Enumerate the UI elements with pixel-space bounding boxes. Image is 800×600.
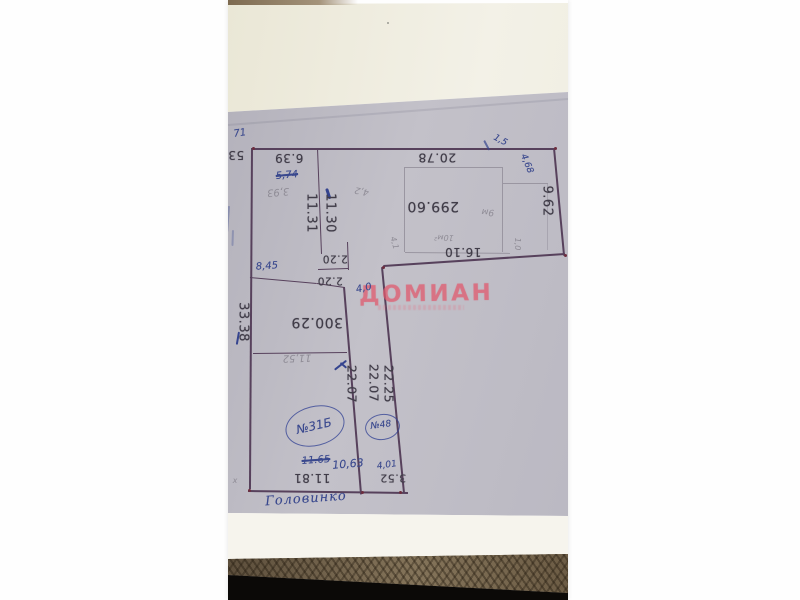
dimension-label: 2.20 <box>322 253 347 264</box>
handwritten-note: 5,74 <box>275 170 298 182</box>
dimension-label: 6.39 <box>275 152 304 164</box>
paper-speck <box>387 22 389 24</box>
watermark: ДОМИАН <box>359 280 494 308</box>
corner-dot <box>248 489 251 492</box>
pencil-building-right <box>502 167 503 252</box>
dimension-label: 11.31 <box>305 193 318 233</box>
pencil-building-left <box>404 167 405 252</box>
pencil-annex-line <box>503 183 548 184</box>
corner-dot <box>252 147 255 150</box>
watermark-text: ДОМИАН <box>359 280 494 308</box>
handwritten-note: 10,63 <box>332 457 364 471</box>
dimension-label: 16.10 <box>445 246 482 258</box>
handwritten-note: 8,45 <box>256 261 279 273</box>
dimension-label: 33.38 <box>237 302 250 342</box>
handwritten-note: х <box>233 477 238 485</box>
corner-dot <box>382 266 385 269</box>
corner-dot <box>361 491 364 494</box>
corner-dot <box>399 491 402 494</box>
handwritten-note: 11,52 <box>283 352 312 363</box>
plan-photo: ДОМИАН 536.3920.78299.6016.10300.292.202… <box>228 0 568 600</box>
page: ДОМИАН 536.3920.78299.6016.10300.292.202… <box>0 0 800 600</box>
dimension-label: 11.30 <box>324 193 337 233</box>
area-label: 299.60 <box>407 199 459 213</box>
dimension-label: 2.20 <box>317 275 342 286</box>
handwritten-note: 3,93 <box>266 185 289 197</box>
handwritten-note: 11.65 <box>301 455 330 467</box>
handwritten-note: 9м <box>481 206 494 216</box>
dimension-label: 22.25 <box>382 365 395 403</box>
dimension-label: 53 <box>228 149 244 161</box>
dimension-label: 22.07 <box>345 365 358 403</box>
handwritten-note: 1,0 <box>513 238 521 251</box>
watermark-tagline <box>378 305 464 310</box>
pencil-building-top <box>405 167 503 168</box>
area-label: 300.29 <box>291 315 343 329</box>
top-fabric-sliver <box>228 0 358 5</box>
dimension-label: 20.78 <box>418 151 456 164</box>
handwritten-note: 71 <box>233 128 247 140</box>
dimension-label: 3.52 <box>380 473 407 484</box>
dimension-label: 9.62 <box>541 186 554 217</box>
corner-dot <box>564 254 567 257</box>
corner-dot <box>554 147 557 150</box>
dimension-label: 11.81 <box>294 472 331 484</box>
boundary-line-top <box>253 148 555 150</box>
dimension-label: 22.07 <box>367 364 380 402</box>
handwritten-note: 10м² <box>434 233 454 242</box>
handwritten-note: 4,2 <box>354 184 370 196</box>
